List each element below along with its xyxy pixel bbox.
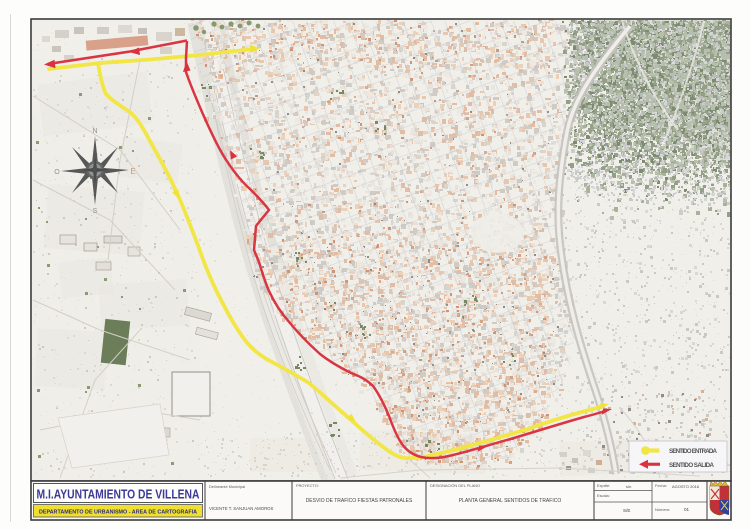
svg-text:DEPARTAMENTO DE URBANISMO - AR: DEPARTAMENTO DE URBANISMO - AREA DE CART… bbox=[39, 510, 197, 516]
svg-text:M.I.AYUNTAMIENTO DE VILLENA: M.I.AYUNTAMIENTO DE VILLENA bbox=[37, 487, 200, 502]
svg-text:Fecha:: Fecha: bbox=[655, 483, 667, 488]
svg-text:Número:: Número: bbox=[655, 507, 670, 512]
svg-text:VICENTE T. SANJUAN AMOROS: VICENTE T. SANJUAN AMOROS bbox=[209, 506, 274, 511]
svg-text:01: 01 bbox=[684, 507, 690, 512]
svg-text:PROYECTO:: PROYECTO: bbox=[296, 483, 319, 488]
svg-text:AGOSTO 2016: AGOSTO 2016 bbox=[672, 484, 700, 489]
svg-text:PLANTA GENERAL SENTIDOS DE TRA: PLANTA GENERAL SENTIDOS DE TRAFICO bbox=[459, 498, 562, 504]
svg-text:S/E: S/E bbox=[623, 508, 630, 513]
svg-text:Escala:: Escala: bbox=[597, 493, 610, 498]
svg-text:Expdte:: Expdte: bbox=[597, 483, 610, 488]
svg-text:DESVIO DE TRAFICO FIESTAS PATR: DESVIO DE TRAFICO FIESTAS PATRONALES bbox=[306, 498, 413, 504]
svg-text:s/n: s/n bbox=[626, 484, 631, 489]
svg-text:Delineante Municipal: Delineante Municipal bbox=[209, 484, 245, 489]
svg-text:DESIGNACIÓN DEL PLANO: DESIGNACIÓN DEL PLANO bbox=[430, 483, 480, 488]
